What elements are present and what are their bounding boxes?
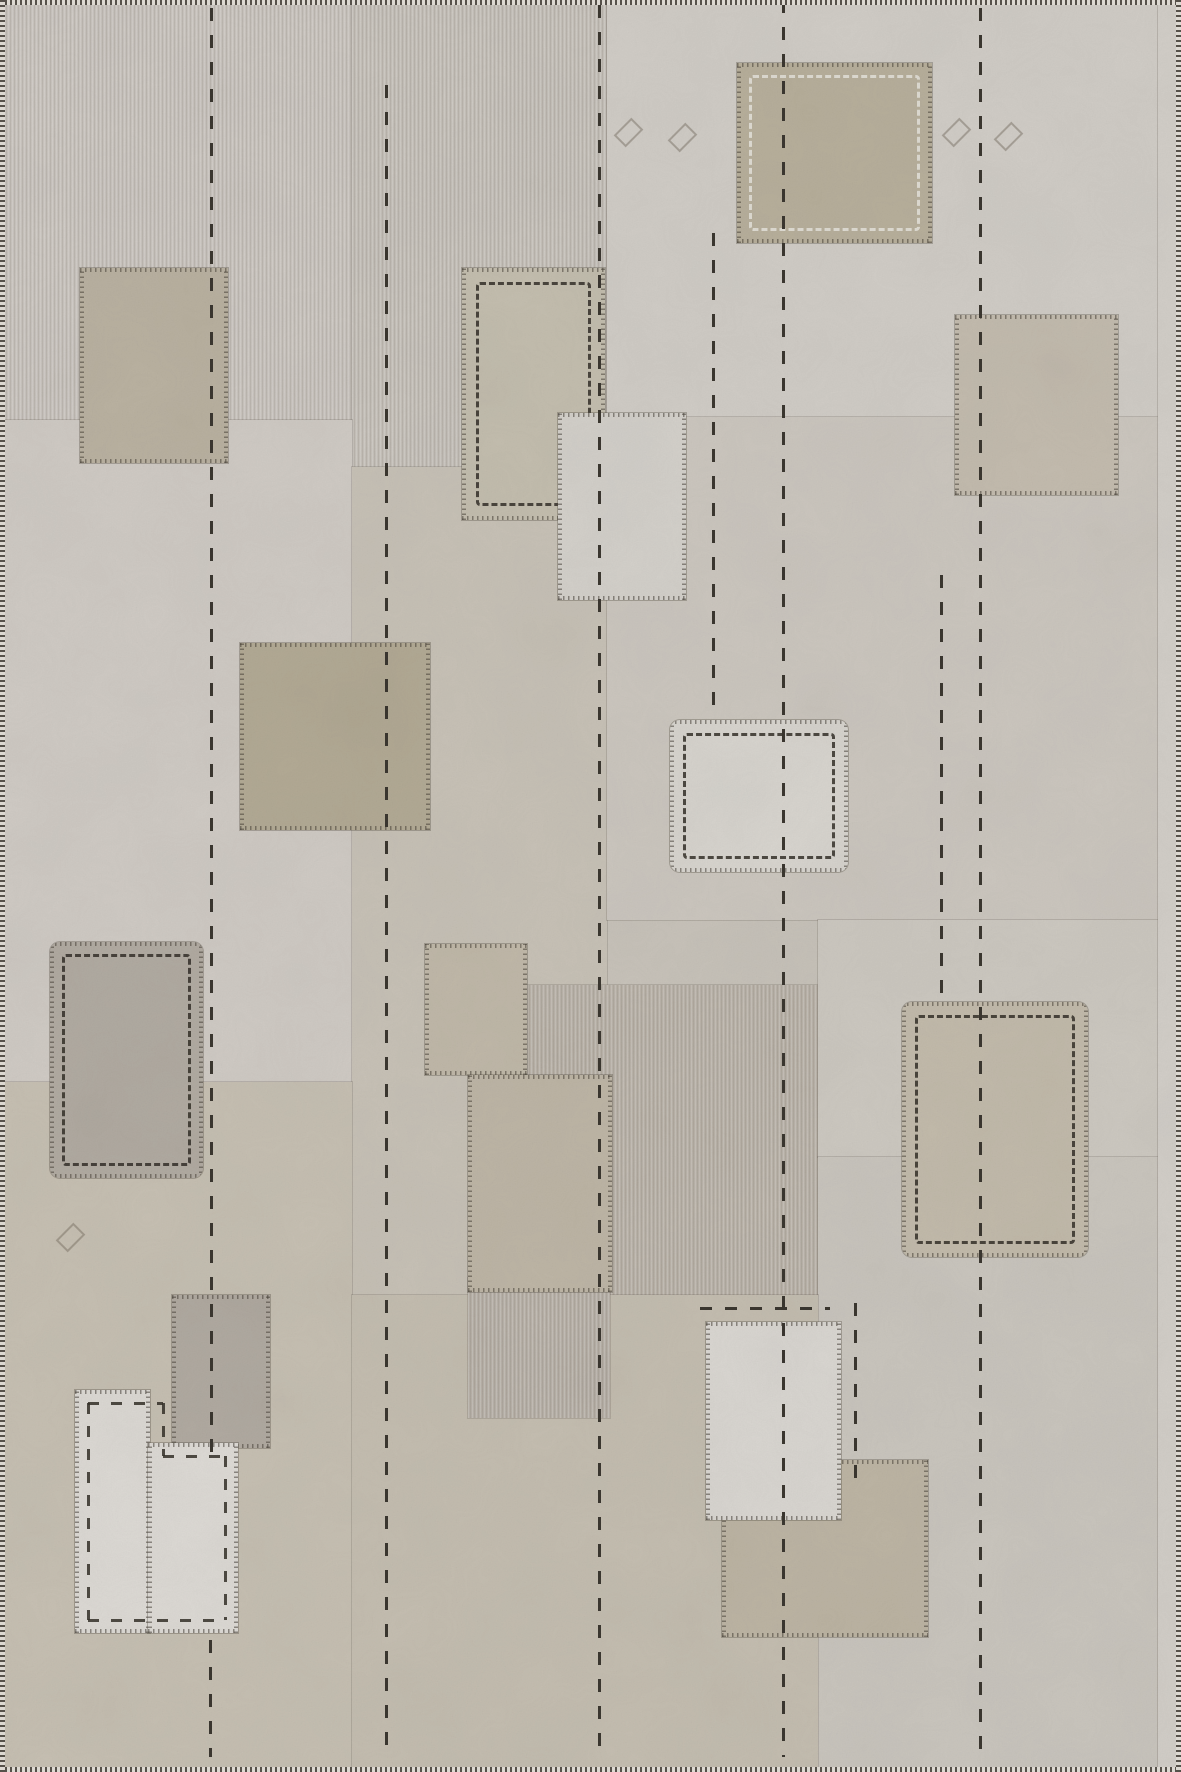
- patch-center-light-dashed: [670, 720, 848, 872]
- stitch-line-6: [940, 575, 943, 998]
- patch-right-tan-dashed: [902, 1002, 1088, 1257]
- patch-bottom-left-darkgray: [172, 1295, 270, 1448]
- patch-center-burlap: [425, 944, 527, 1075]
- patch-left-gray-dashed-stitch-border: [62, 954, 191, 1166]
- L-dash-step-down: [162, 1403, 165, 1456]
- patch-top-left-tan: [80, 268, 228, 463]
- patch-left-gray-dashed: [50, 942, 203, 1178]
- rug-edge-top: [0, 0, 1181, 5]
- stitch-line-1b: [209, 1640, 212, 1757]
- stitch-line-8: [854, 1303, 857, 1492]
- stitch-line-4: [712, 233, 715, 716]
- L-dash-step-right: [163, 1455, 225, 1458]
- rug-edge-bottom: [0, 1767, 1181, 1772]
- patch-mid-left-olive: [240, 643, 430, 830]
- patch-bottom-light: [706, 1322, 841, 1520]
- rug-edge-right: [1176, 0, 1181, 1772]
- panel-small-gray-block: [468, 1278, 610, 1418]
- patchwork-rug-photo: [0, 0, 1181, 1772]
- patch-right-tan-dashed-stitch-border: [915, 1015, 1075, 1244]
- rug-edge-left: [0, 0, 5, 1772]
- stitch-line-horizontal: [700, 1307, 830, 1310]
- patch-top-right-olive-stitch-border: [749, 75, 920, 231]
- L-dash-top: [88, 1402, 163, 1405]
- stitch-line-7: [979, 8, 982, 1757]
- patch-center-soft-tan: [468, 1075, 612, 1292]
- patch-center-light-dashed-stitch-border: [683, 733, 835, 859]
- stitch-line-2: [385, 85, 388, 1757]
- L-dash-left: [87, 1403, 90, 1620]
- patch-top-right-olive: [737, 63, 932, 243]
- L-dash-bottom: [88, 1619, 225, 1622]
- stitch-line-5: [782, 0, 785, 1757]
- stitch-line-3: [598, 5, 601, 1757]
- stitch-line-1: [210, 8, 213, 1455]
- L-dash-right: [224, 1456, 227, 1620]
- patch-center-upper-light: [558, 413, 686, 600]
